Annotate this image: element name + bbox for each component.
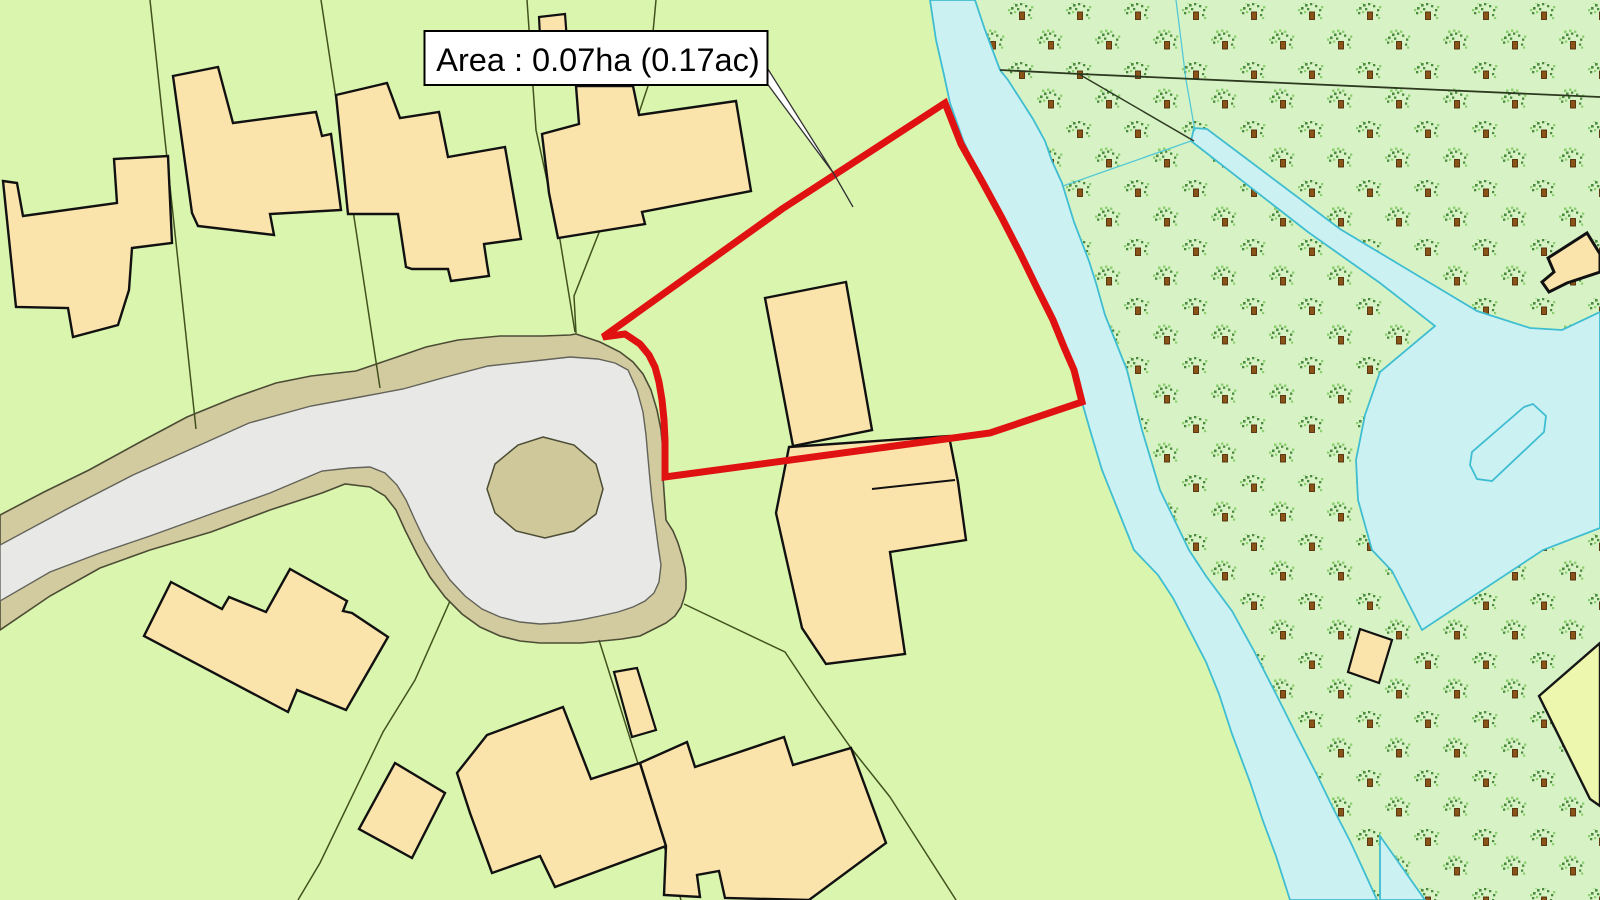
svg-text:Area : 0.07ha (0.17ac): Area : 0.07ha (0.17ac) [436,42,759,78]
